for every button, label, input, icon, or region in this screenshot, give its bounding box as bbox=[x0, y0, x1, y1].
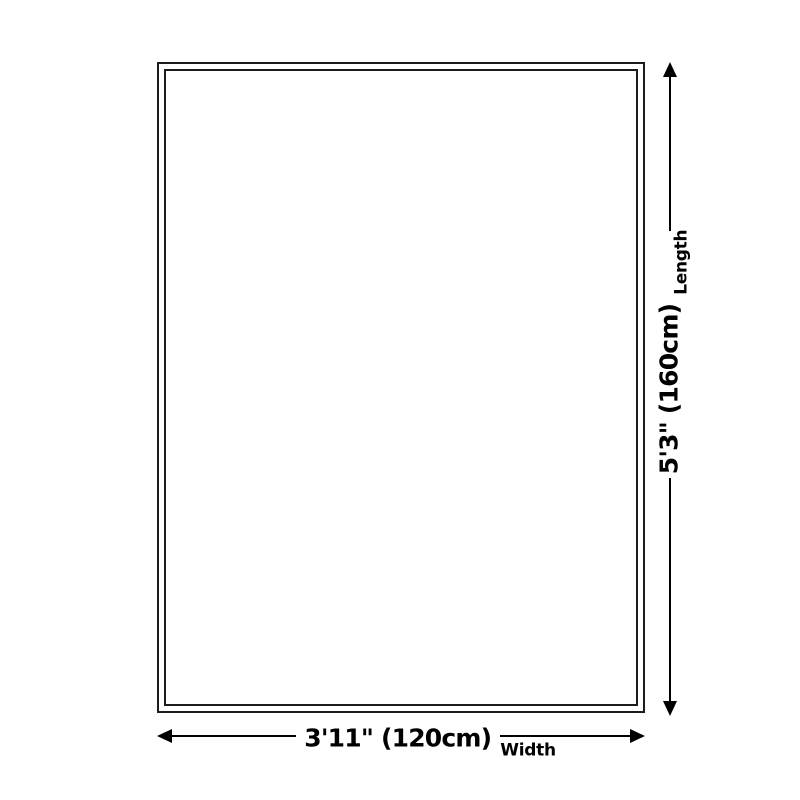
width-value: 3'11" (120cm) bbox=[304, 724, 491, 753]
width-label: Width bbox=[500, 741, 555, 761]
width-dimension-line-left bbox=[170, 735, 296, 737]
arrow-down-icon bbox=[663, 701, 677, 716]
length-label: Length bbox=[672, 230, 692, 295]
length-dimension-line-bottom bbox=[669, 478, 671, 702]
product-inner-border bbox=[164, 69, 638, 706]
width-dimension-label: 3'11" (120cm)Width bbox=[304, 726, 556, 751]
product-outline bbox=[157, 62, 645, 713]
length-dimension-line-top bbox=[669, 76, 671, 231]
length-dimension-label: 5'3" (160cm)Length bbox=[657, 230, 682, 475]
width-dimension-line-right bbox=[500, 735, 631, 737]
dimension-diagram: 5'3" (160cm)Length 3'11" (120cm)Width bbox=[0, 0, 800, 800]
arrow-up-icon bbox=[663, 62, 677, 77]
arrow-right-icon bbox=[630, 729, 645, 743]
length-value: 5'3" (160cm) bbox=[655, 304, 684, 474]
